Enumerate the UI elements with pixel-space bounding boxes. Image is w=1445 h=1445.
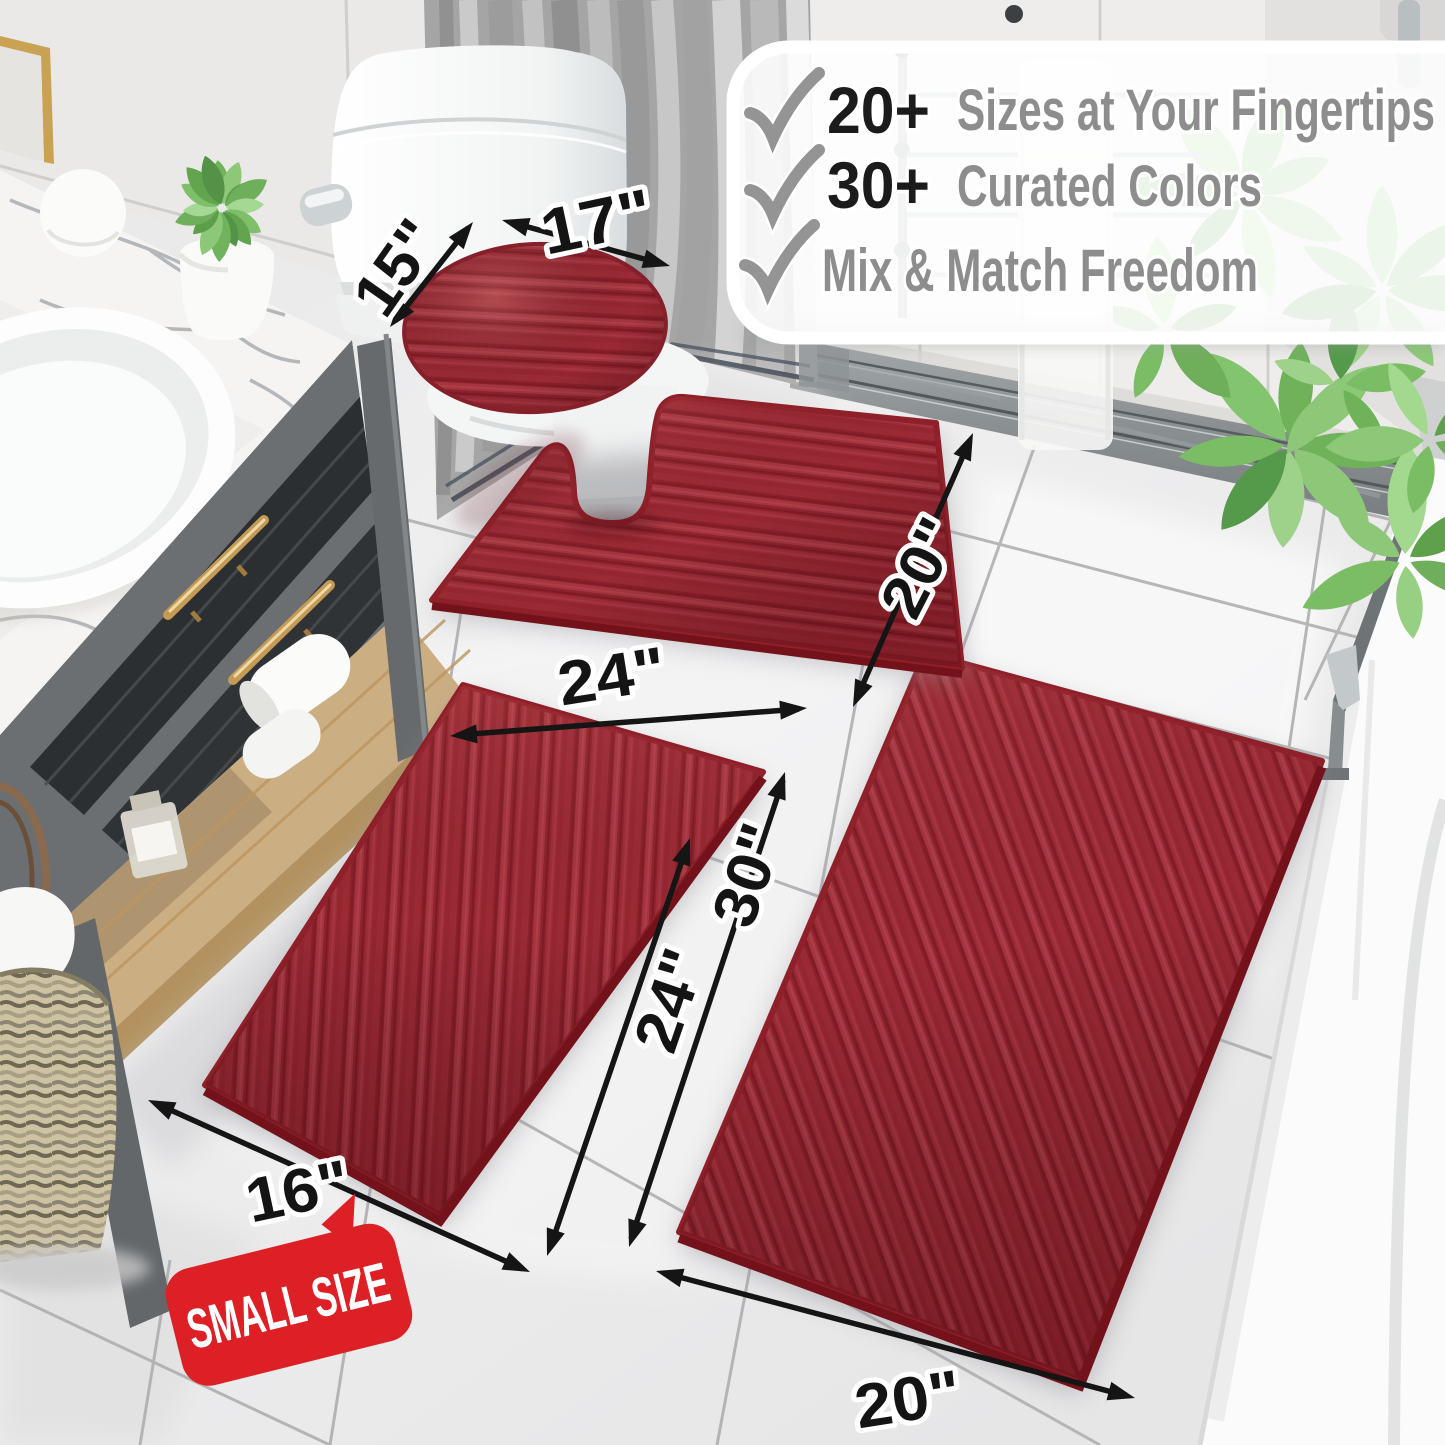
svg-text:Curated Colors: Curated Colors [957,154,1262,219]
svg-text:20+: 20+ [827,73,930,147]
svg-text:Mix & Match Freedom: Mix & Match Freedom [822,237,1258,304]
svg-text:30+: 30+ [827,148,930,222]
svg-text:Sizes at Your Fingertips: Sizes at Your Fingertips [957,78,1435,143]
